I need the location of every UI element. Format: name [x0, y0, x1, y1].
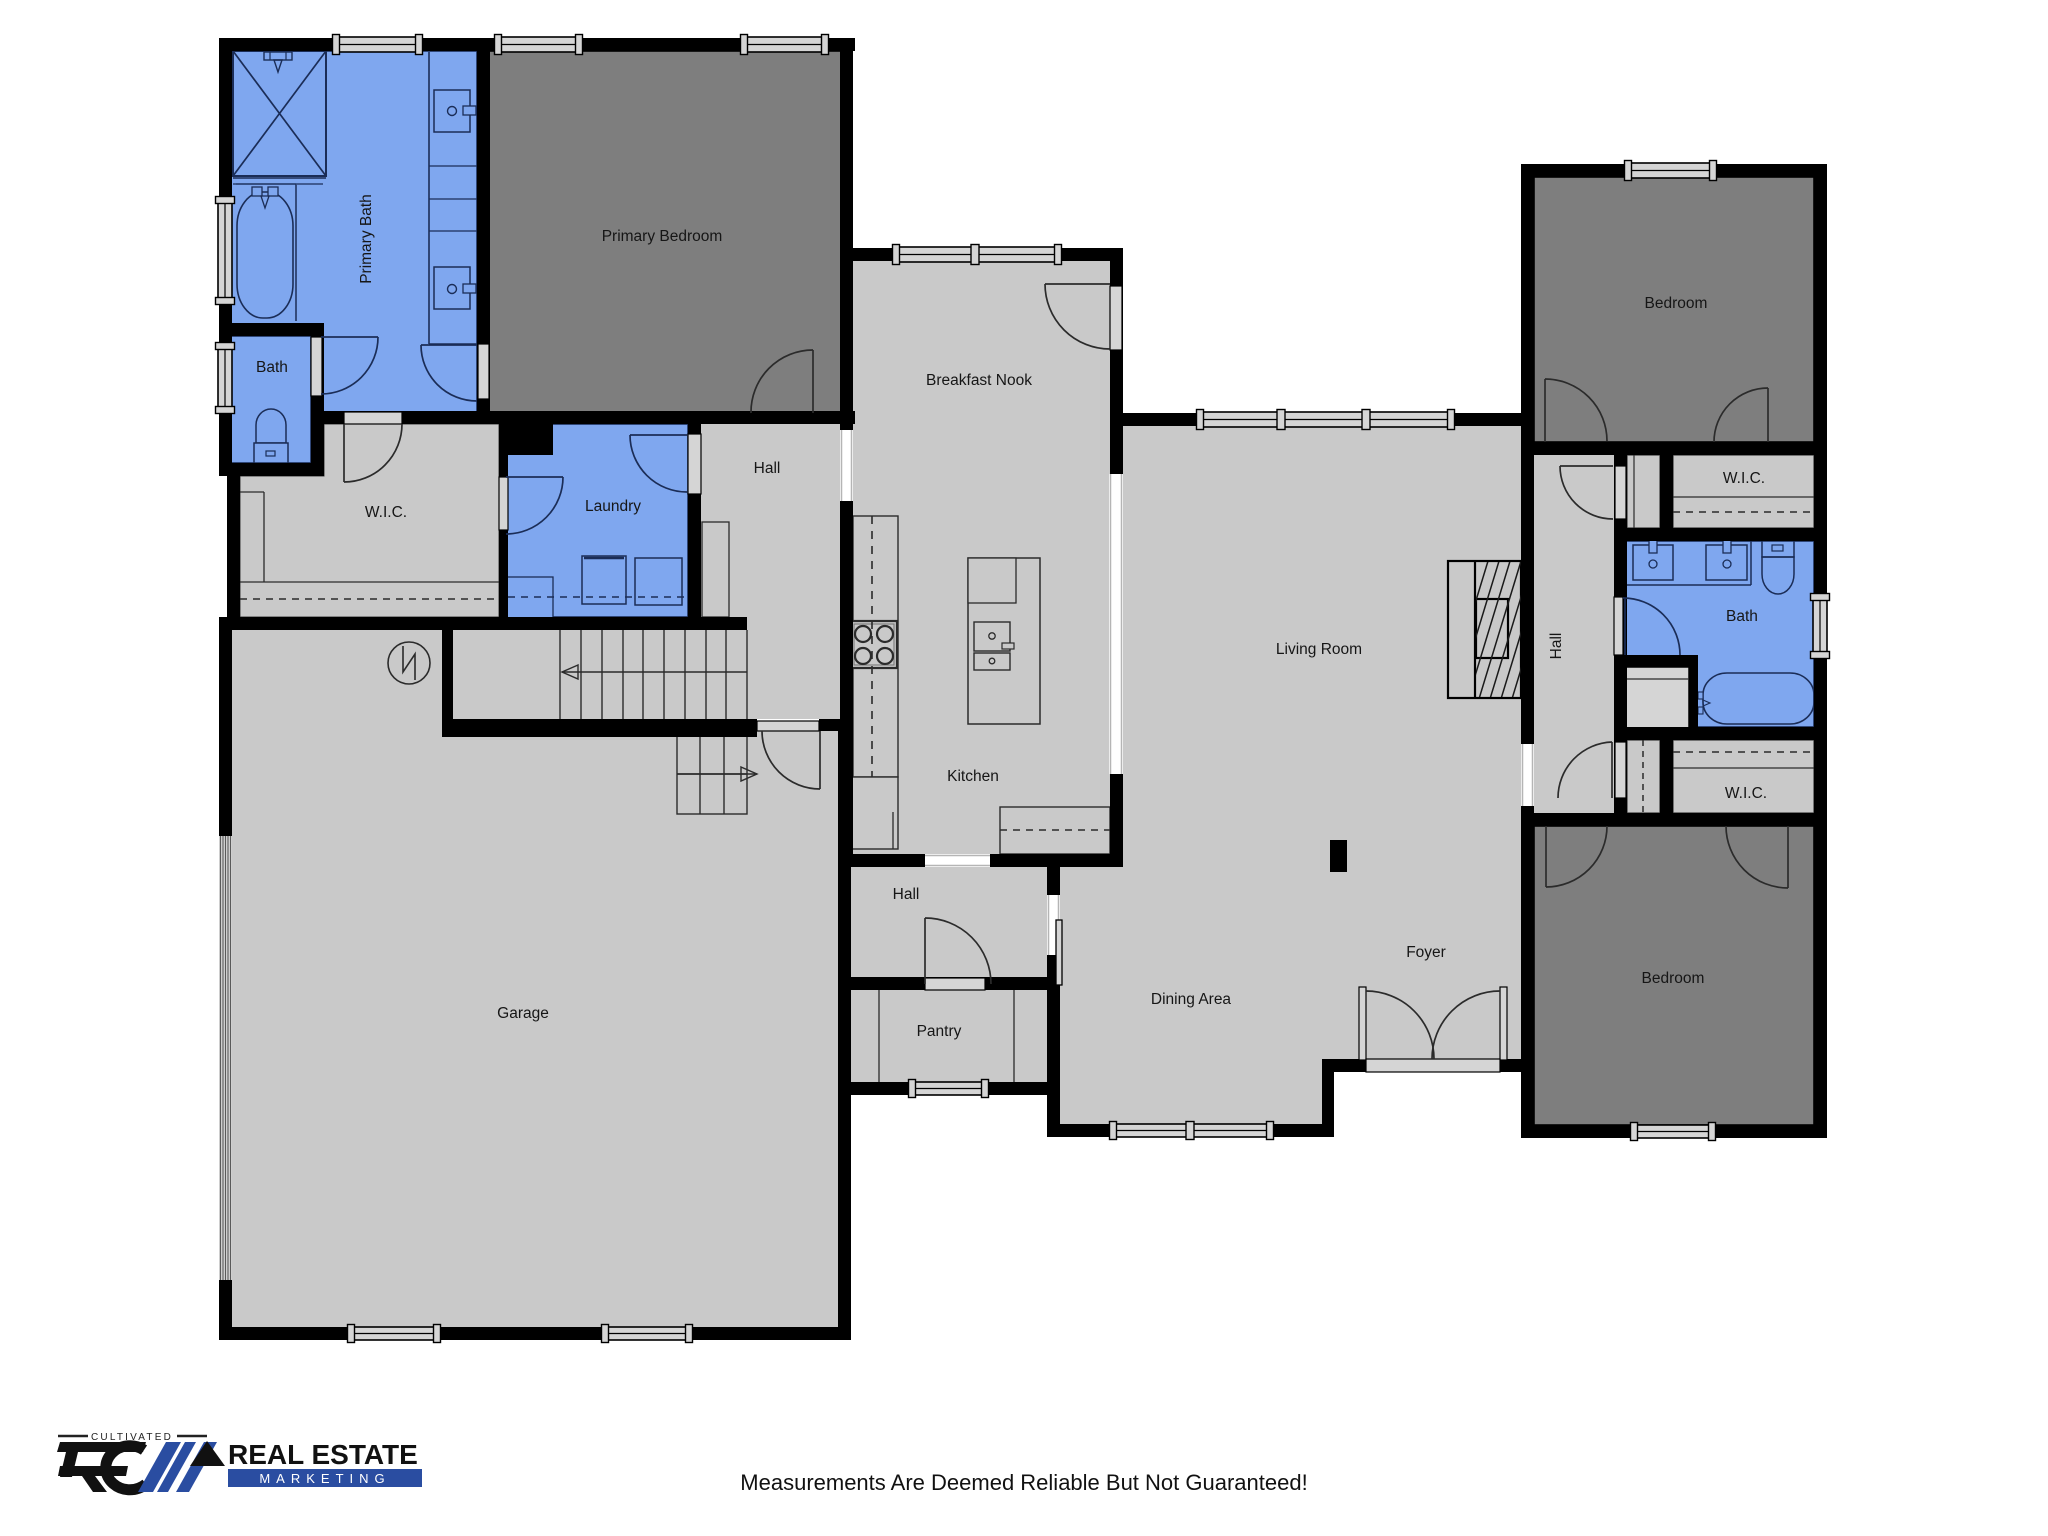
svg-text:W.I.C.: W.I.C. — [1725, 785, 1767, 802]
svg-text:REAL ESTATE: REAL ESTATE — [228, 1439, 418, 1470]
svg-text:Bath: Bath — [256, 359, 288, 376]
svg-text:Foyer: Foyer — [1406, 944, 1446, 961]
svg-text:MARKETING: MARKETING — [259, 1471, 390, 1486]
svg-text:Hall: Hall — [1548, 633, 1565, 660]
svg-text:Laundry: Laundry — [585, 498, 641, 515]
svg-text:Pantry: Pantry — [917, 1023, 962, 1040]
svg-text:Primary Bath: Primary Bath — [358, 194, 375, 284]
svg-text:Garage: Garage — [497, 1005, 549, 1022]
svg-text:Dining Area: Dining Area — [1151, 991, 1232, 1008]
svg-text:Bath: Bath — [1726, 608, 1758, 625]
svg-text:Measurements Are Deemed Reliab: Measurements Are Deemed Reliable But Not… — [740, 1470, 1307, 1495]
svg-text:Breakfast Nook: Breakfast Nook — [926, 372, 1032, 389]
svg-text:W.I.C.: W.I.C. — [365, 504, 407, 521]
svg-text:Bedroom: Bedroom — [1642, 970, 1705, 987]
svg-text:Hall: Hall — [893, 886, 920, 903]
svg-text:Kitchen: Kitchen — [947, 768, 999, 785]
svg-text:Bedroom: Bedroom — [1645, 295, 1708, 312]
svg-text:Hall: Hall — [754, 460, 781, 477]
svg-text:Primary Bedroom: Primary Bedroom — [602, 228, 723, 245]
svg-text:W.I.C.: W.I.C. — [1723, 470, 1765, 487]
svg-text:Living Room: Living Room — [1276, 641, 1362, 658]
